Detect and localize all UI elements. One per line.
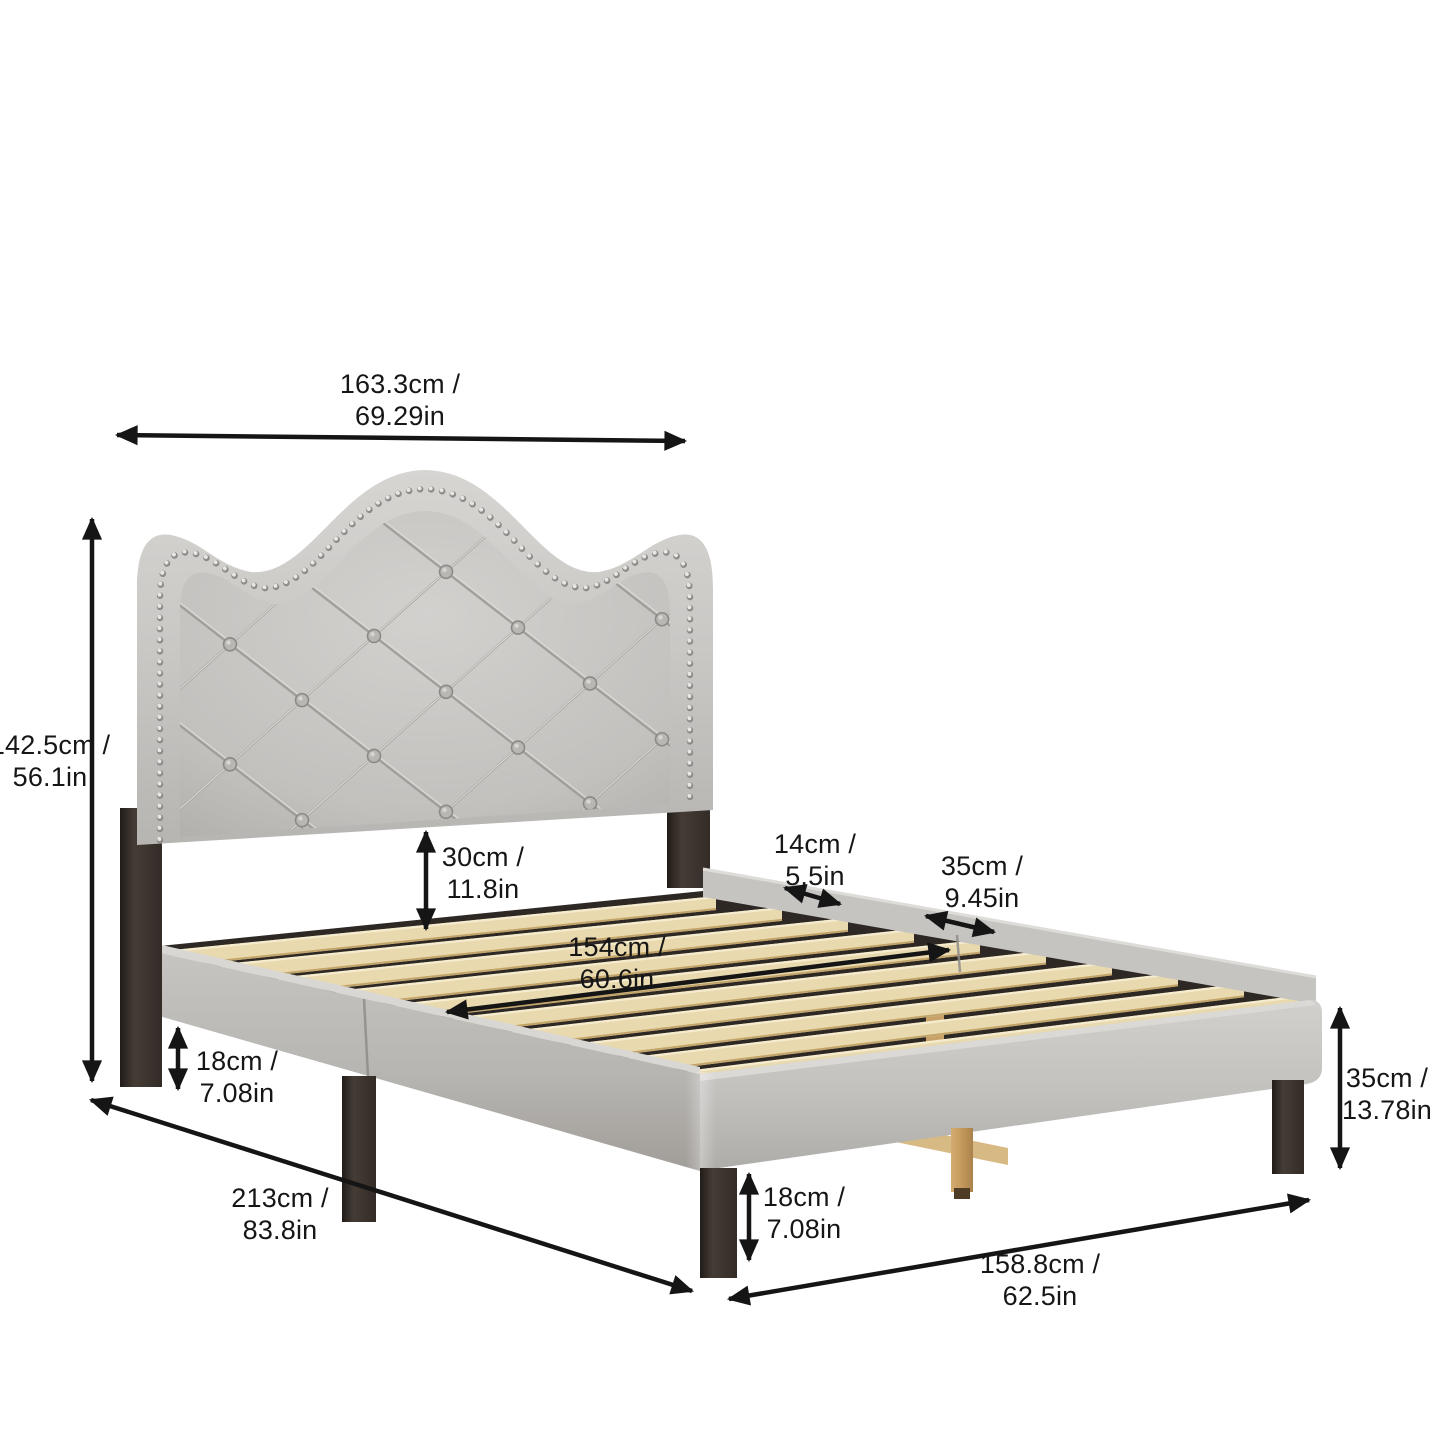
dimension-label-overall-width: 158.8cm / 62.5in xyxy=(980,1248,1100,1312)
dimension-label-foot-rail-height: 35cm / 9.45in xyxy=(941,850,1023,914)
dimension-value-in: 5.5in xyxy=(774,860,856,892)
tufting-button xyxy=(440,565,453,578)
dimension-value-cm: 30cm / xyxy=(442,841,524,873)
center-support-leg-caster xyxy=(954,1188,970,1199)
tufting-button xyxy=(656,733,669,746)
bed-dimension-diagram: 163.3cm / 69.29in 142.5cm / 56.1in 30cm … xyxy=(0,0,1445,1445)
tufting-button xyxy=(584,797,597,810)
tufting-button xyxy=(656,613,669,626)
center-support-leg-wood xyxy=(951,1128,973,1192)
dimension-value-cm: 18cm / xyxy=(196,1045,278,1077)
tufting-button xyxy=(440,685,453,698)
dimension-value-in: 56.1in xyxy=(0,761,110,793)
dimension-label-head-leg-height: 18cm / 7.08in xyxy=(196,1045,278,1109)
near-corner-leg xyxy=(700,1168,737,1278)
dimension-value-cm: 35cm / xyxy=(1342,1062,1432,1094)
dimension-value-in: 83.8in xyxy=(231,1214,328,1246)
tufting-button xyxy=(440,805,453,818)
dimension-value-cm: 158.8cm / xyxy=(980,1248,1100,1280)
dimension-value-in: 9.45in xyxy=(941,882,1023,914)
tufting-button xyxy=(368,749,381,762)
dimension-value-cm: 35cm / xyxy=(941,850,1023,882)
dimension-value-in: 7.08in xyxy=(763,1213,845,1245)
dimension-label-foot-leg-height: 18cm / 7.08in xyxy=(763,1181,845,1245)
dimension-value-cm: 14cm / xyxy=(774,828,856,860)
tufting-button xyxy=(512,621,525,634)
rail-corner-highlight xyxy=(686,1072,716,1172)
tufting-button xyxy=(224,758,237,771)
dimension-value-in: 7.08in xyxy=(196,1077,278,1109)
dimension-label-side-rail-thickness: 14cm / 5.5in xyxy=(774,828,856,892)
headboard-left-leg xyxy=(120,808,162,1087)
dimension-value-in: 13.78in xyxy=(1342,1094,1432,1126)
dimension-label-overall-height: 142.5cm / 56.1in xyxy=(0,729,110,793)
dimension-label-under-headboard-gap: 30cm / 11.8in xyxy=(442,841,524,905)
dimension-value-cm: 154cm / xyxy=(568,931,665,963)
tufting-button xyxy=(224,638,237,651)
dimension-value-in: 69.29in xyxy=(340,400,460,432)
dimension-label-headboard-width: 163.3cm / 69.29in xyxy=(340,368,460,432)
dimension-label-platform-total-height: 35cm / 13.78in xyxy=(1342,1062,1432,1126)
dimension-value-cm: 163.3cm / xyxy=(340,368,460,400)
tufting-button xyxy=(512,741,525,754)
tufting-button xyxy=(584,557,597,570)
dimension-value-cm: 213cm / xyxy=(231,1182,328,1214)
dimension-label-overall-length: 213cm / 83.8in xyxy=(231,1182,328,1246)
dimension-value-cm: 142.5cm / xyxy=(0,729,110,761)
tufting-button xyxy=(584,677,597,690)
dim-arrow-headboard-width xyxy=(117,435,685,441)
tufting-button xyxy=(296,694,309,707)
tufting-button xyxy=(296,814,309,827)
far-foot-leg xyxy=(1272,1080,1304,1174)
bed-illustration xyxy=(0,0,1445,1445)
dimension-value-in: 11.8in xyxy=(442,873,524,905)
dimension-value-cm: 18cm / xyxy=(763,1181,845,1213)
dimension-value-in: 60.6in xyxy=(568,963,665,995)
tufting-button xyxy=(368,629,381,642)
side-rail-middle-leg xyxy=(342,1076,376,1222)
dimension-value-in: 62.5in xyxy=(980,1280,1100,1312)
dimension-label-slat-inner-width: 154cm / 60.6in xyxy=(568,931,665,995)
